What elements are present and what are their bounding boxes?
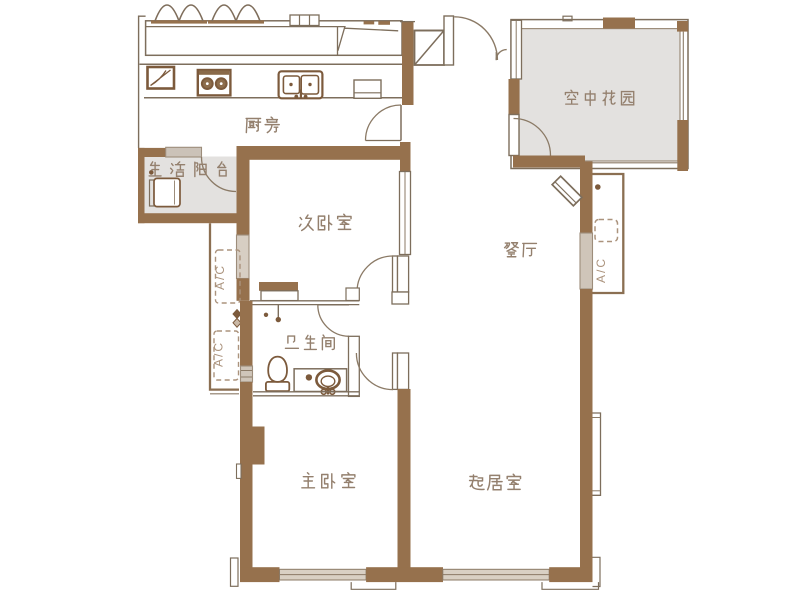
svg-text:A/C: A/C	[213, 264, 227, 290]
svg-text:A/C: A/C	[594, 257, 608, 283]
svg-text:A/C: A/C	[212, 341, 226, 367]
